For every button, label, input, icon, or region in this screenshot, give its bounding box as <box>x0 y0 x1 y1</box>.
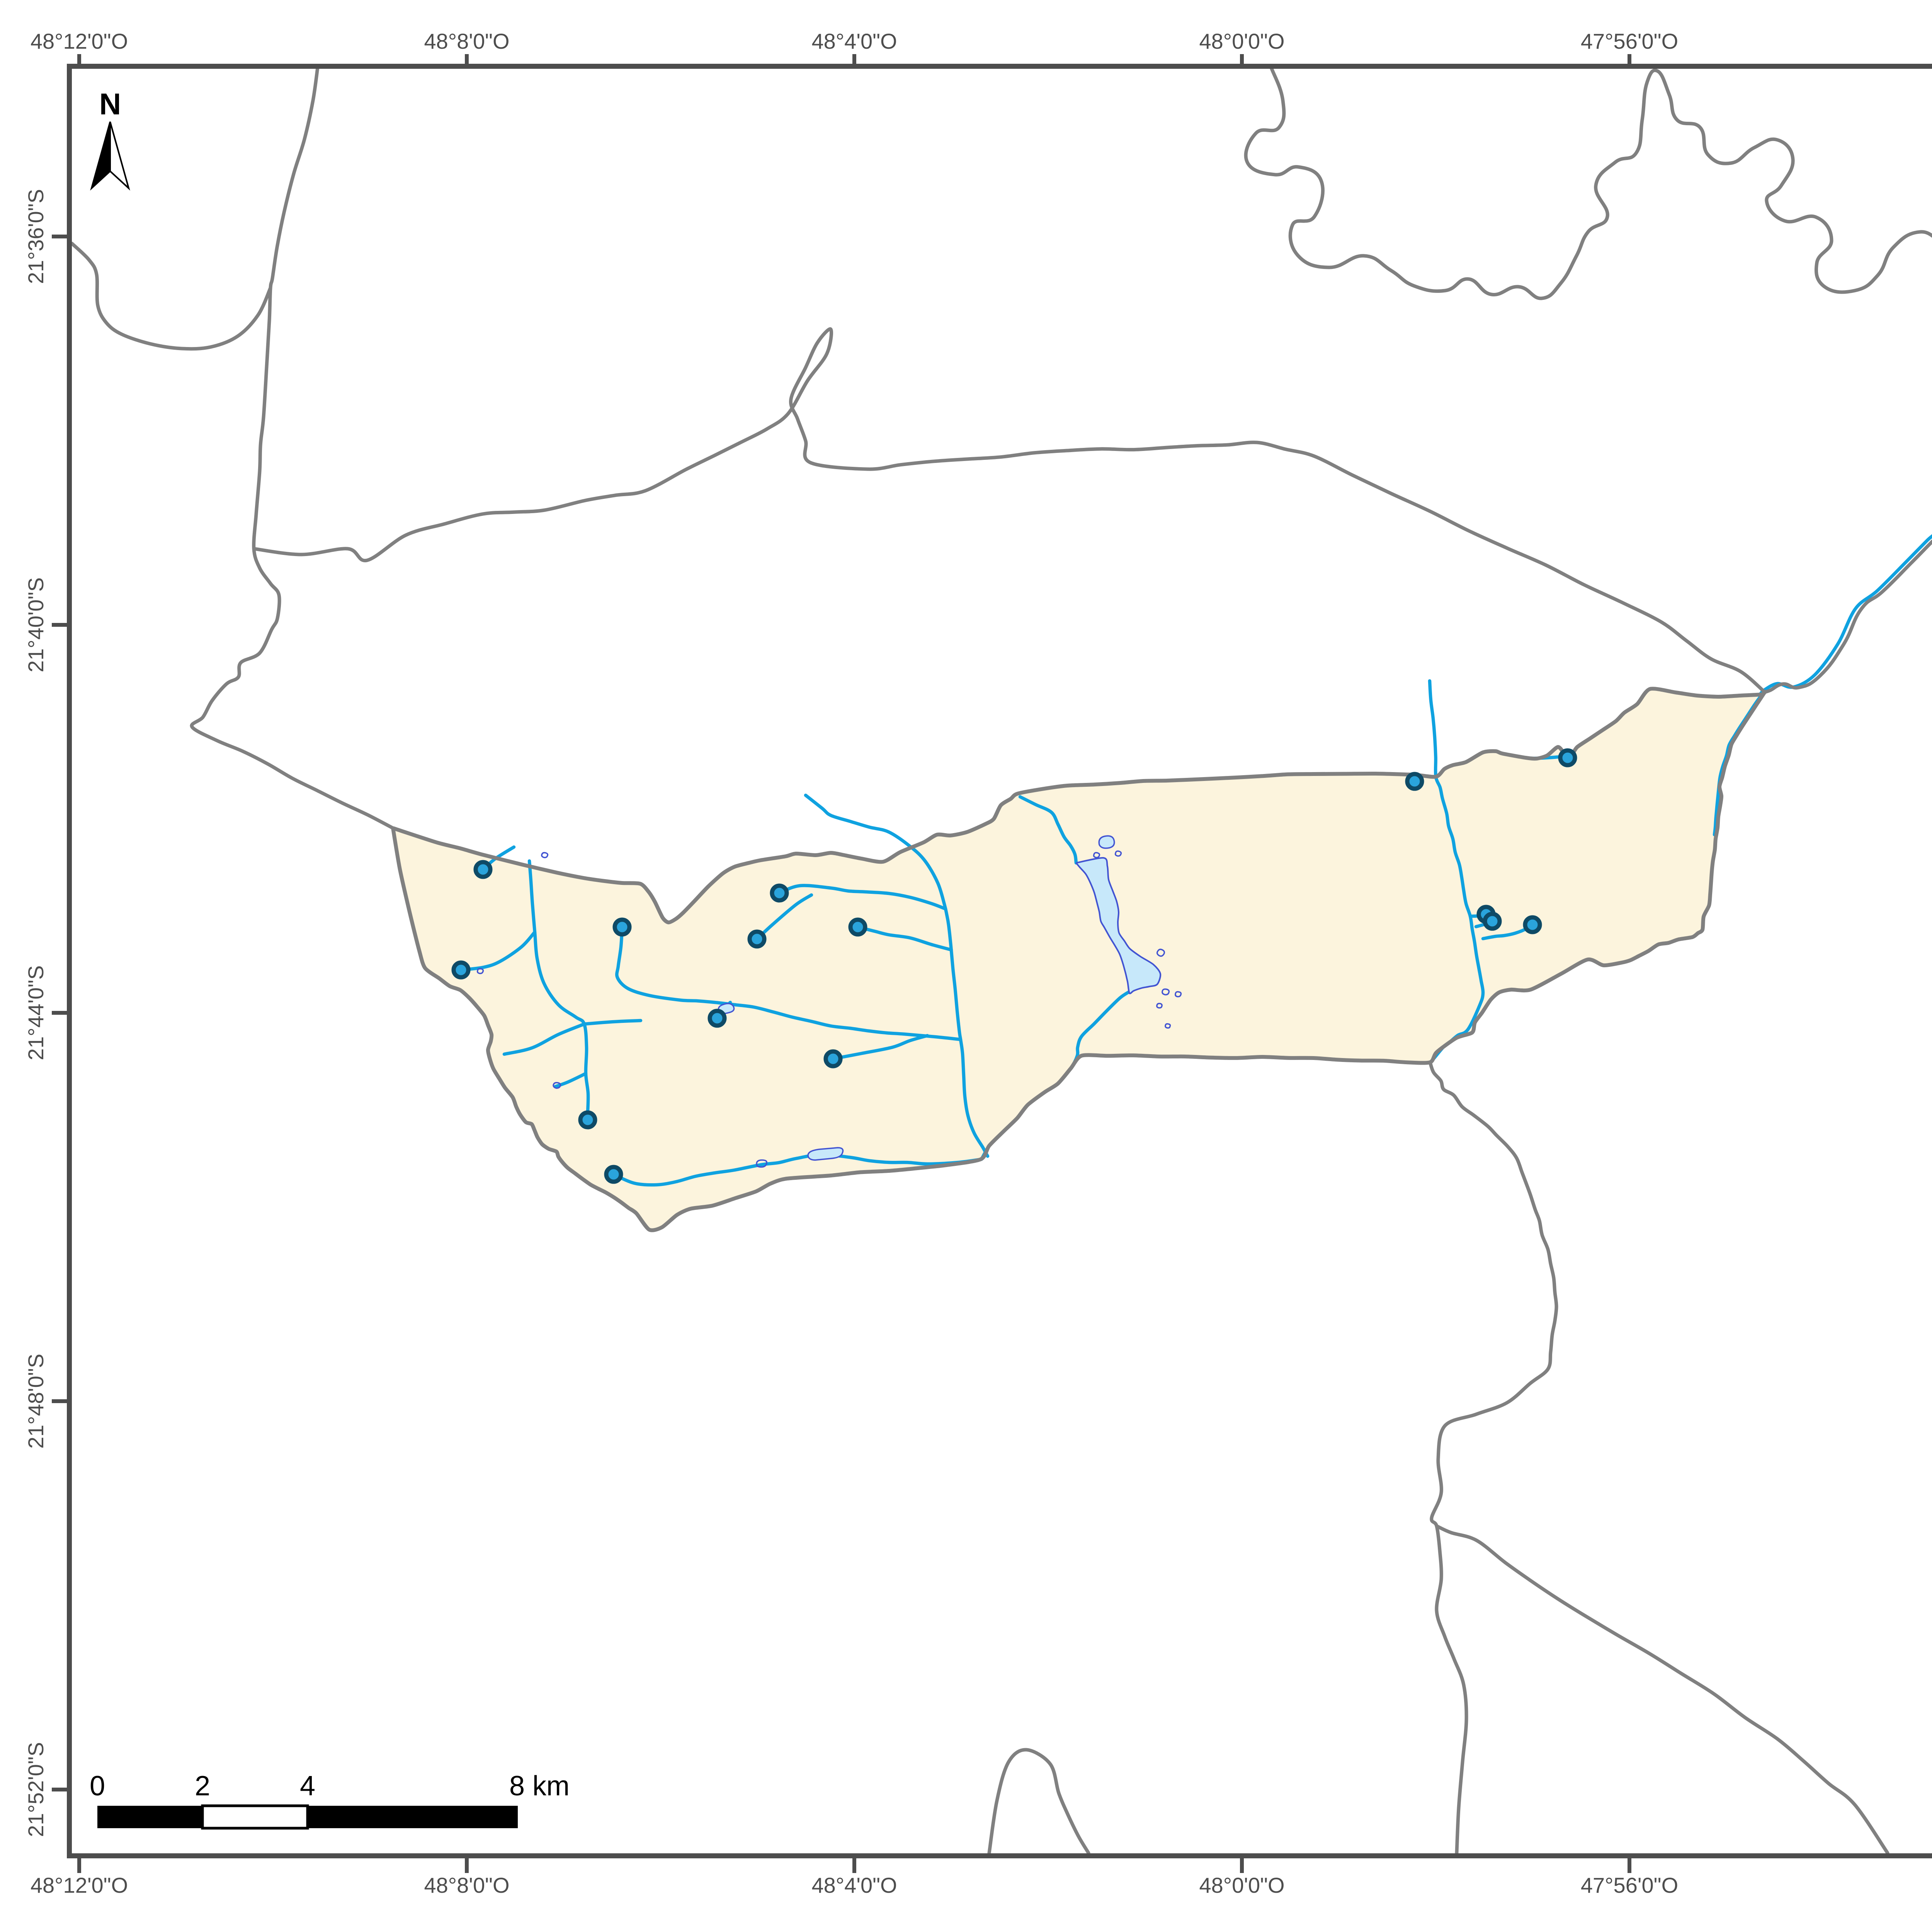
svg-text:21°52'0"S: 21°52'0"S <box>24 1742 48 1837</box>
svg-text:48°0'0"O: 48°0'0"O <box>1199 29 1284 53</box>
svg-text:21°36'0"S: 21°36'0"S <box>24 189 48 284</box>
svg-text:47°56'0"O: 47°56'0"O <box>1581 29 1678 53</box>
svg-text:48°4'0"O: 48°4'0"O <box>811 29 897 53</box>
svg-text:48°8'0"O: 48°8'0"O <box>424 1873 509 1897</box>
svg-text:8 km: 8 km <box>509 1771 570 1802</box>
svg-text:0: 0 <box>90 1771 105 1802</box>
svg-text:21°44'0"S: 21°44'0"S <box>24 965 48 1060</box>
svg-text:4: 4 <box>300 1771 315 1802</box>
svg-text:47°56'0"O: 47°56'0"O <box>1581 1873 1678 1897</box>
svg-text:48°8'0"O: 48°8'0"O <box>424 29 509 53</box>
svg-text:48°4'0"O: 48°4'0"O <box>811 1873 897 1897</box>
svg-text:N: N <box>99 87 121 121</box>
svg-text:48°12'0"O: 48°12'0"O <box>31 29 128 53</box>
svg-text:48°0'0"O: 48°0'0"O <box>1199 1873 1284 1897</box>
svg-text:48°12'0"O: 48°12'0"O <box>31 1873 128 1897</box>
svg-text:2: 2 <box>195 1771 210 1802</box>
svg-text:21°40'0"S: 21°40'0"S <box>24 577 48 672</box>
svg-text:21°48'0"S: 21°48'0"S <box>24 1354 48 1449</box>
